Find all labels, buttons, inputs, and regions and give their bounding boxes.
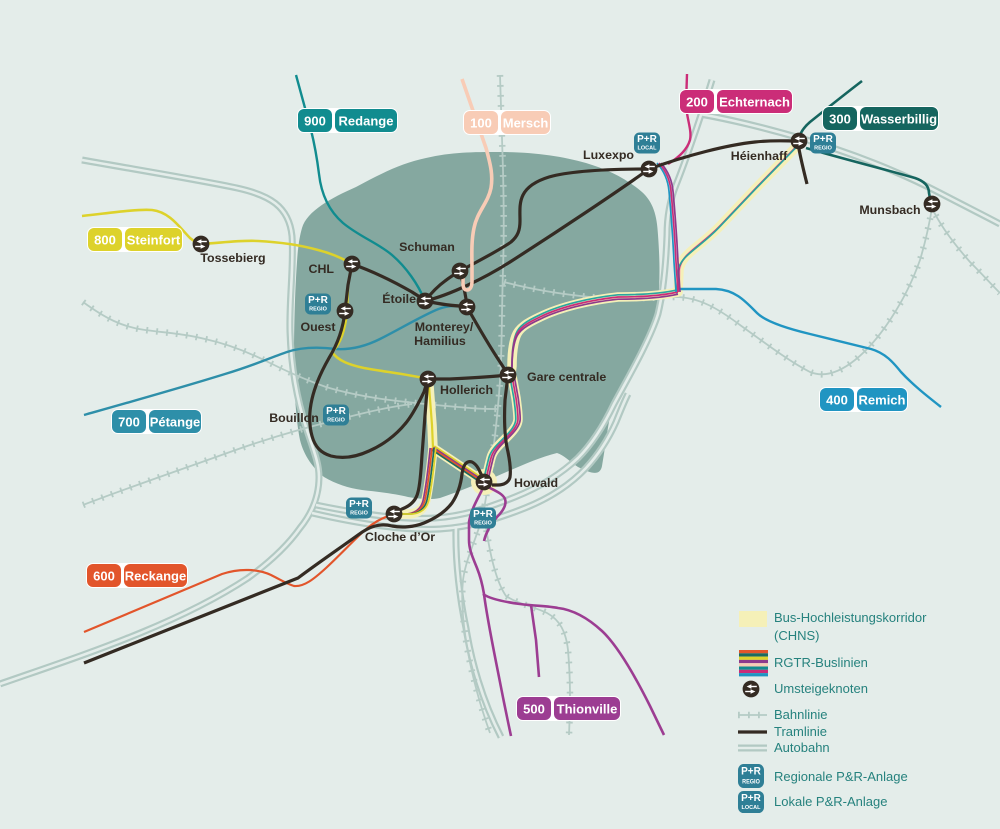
- svg-text:Tossebierg: Tossebierg: [200, 251, 265, 265]
- svg-text:Tramlinie: Tramlinie: [774, 724, 827, 739]
- svg-text:Hamilius: Hamilius: [414, 334, 466, 348]
- svg-text:400: 400: [826, 393, 848, 408]
- svg-text:Thionville: Thionville: [557, 702, 618, 717]
- svg-text:500: 500: [523, 702, 545, 717]
- svg-text:Mersch: Mersch: [503, 116, 549, 131]
- svg-text:Regionale P&R-Anlage: Regionale P&R-Anlage: [774, 769, 908, 784]
- svg-text:Hollerich: Hollerich: [440, 383, 493, 397]
- svg-text:Remich: Remich: [859, 393, 906, 408]
- svg-text:Bahnlinie: Bahnlinie: [774, 707, 828, 722]
- svg-text:Ouest: Ouest: [300, 320, 335, 334]
- svg-text:200: 200: [686, 95, 708, 110]
- svg-text:800: 800: [94, 233, 116, 248]
- svg-text:600: 600: [93, 569, 115, 584]
- svg-text:Étoile: Étoile: [382, 291, 416, 306]
- svg-text:Héienhaff: Héienhaff: [731, 149, 788, 163]
- svg-text:Schuman: Schuman: [399, 240, 455, 254]
- svg-text:700: 700: [118, 415, 140, 430]
- svg-text:Luxexpo: Luxexpo: [583, 148, 634, 162]
- svg-text:Munsbach: Munsbach: [859, 203, 920, 217]
- svg-text:Bouillon: Bouillon: [269, 411, 319, 425]
- svg-text:Cloche d’Or: Cloche d’Or: [365, 530, 435, 544]
- svg-text:Autobahn: Autobahn: [774, 740, 830, 755]
- svg-text:Bus-Hochleistungskorridor: Bus-Hochleistungskorridor: [774, 610, 927, 625]
- svg-text:CHL: CHL: [309, 262, 335, 276]
- svg-text:(CHNS): (CHNS): [774, 628, 820, 643]
- svg-text:300: 300: [829, 112, 851, 127]
- svg-text:Echternach: Echternach: [719, 95, 790, 110]
- svg-text:Gare centrale: Gare centrale: [527, 370, 606, 384]
- svg-text:Monterey/: Monterey/: [415, 320, 474, 334]
- svg-text:Lokale P&R-Anlage: Lokale P&R-Anlage: [774, 794, 887, 809]
- svg-text:Redange: Redange: [339, 114, 394, 129]
- svg-text:RGTR-Buslinien: RGTR-Buslinien: [774, 655, 868, 670]
- svg-text:Wasserbillig: Wasserbillig: [861, 112, 937, 127]
- svg-text:100: 100: [470, 116, 492, 131]
- svg-text:Reckange: Reckange: [125, 569, 186, 584]
- svg-text:Howald: Howald: [514, 476, 558, 490]
- svg-text:Umsteigeknoten: Umsteigeknoten: [774, 681, 868, 696]
- svg-text:Steinfort: Steinfort: [127, 233, 181, 248]
- svg-text:900: 900: [304, 114, 326, 129]
- svg-text:Pétange: Pétange: [150, 415, 201, 430]
